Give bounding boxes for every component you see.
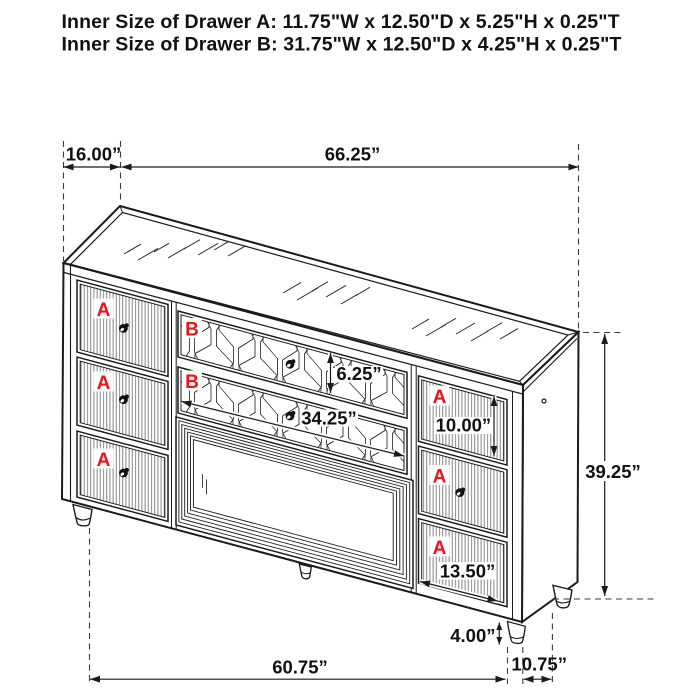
svg-text:34.25”: 34.25” — [301, 408, 357, 429]
svg-text:A: A — [97, 300, 111, 321]
svg-text:A: A — [97, 373, 111, 394]
svg-text:16.00”: 16.00” — [66, 144, 122, 165]
svg-text:6.25”: 6.25” — [336, 363, 381, 384]
svg-text:A: A — [433, 538, 447, 559]
svg-text:A: A — [433, 387, 447, 408]
svg-text:10.00”: 10.00” — [436, 415, 492, 436]
svg-text:B: B — [185, 320, 199, 341]
svg-text:13.50”: 13.50” — [440, 561, 496, 582]
svg-text:A: A — [433, 467, 447, 488]
svg-text:4.00”: 4.00” — [450, 625, 495, 646]
svg-text:60.75”: 60.75” — [272, 657, 328, 678]
svg-text:39.25”: 39.25” — [585, 461, 641, 482]
svg-text:Inner Size of Drawer B: 31.75": Inner Size of Drawer B: 31.75"W x 12.50"… — [62, 34, 622, 56]
svg-text:A: A — [97, 450, 111, 471]
svg-text:10.75”: 10.75” — [511, 654, 567, 675]
svg-text:Inner Size of Drawer A: 11.75": Inner Size of Drawer A: 11.75"W x 12.50"… — [62, 11, 620, 33]
svg-text:B: B — [185, 372, 199, 393]
svg-text:66.25”: 66.25” — [325, 144, 381, 165]
